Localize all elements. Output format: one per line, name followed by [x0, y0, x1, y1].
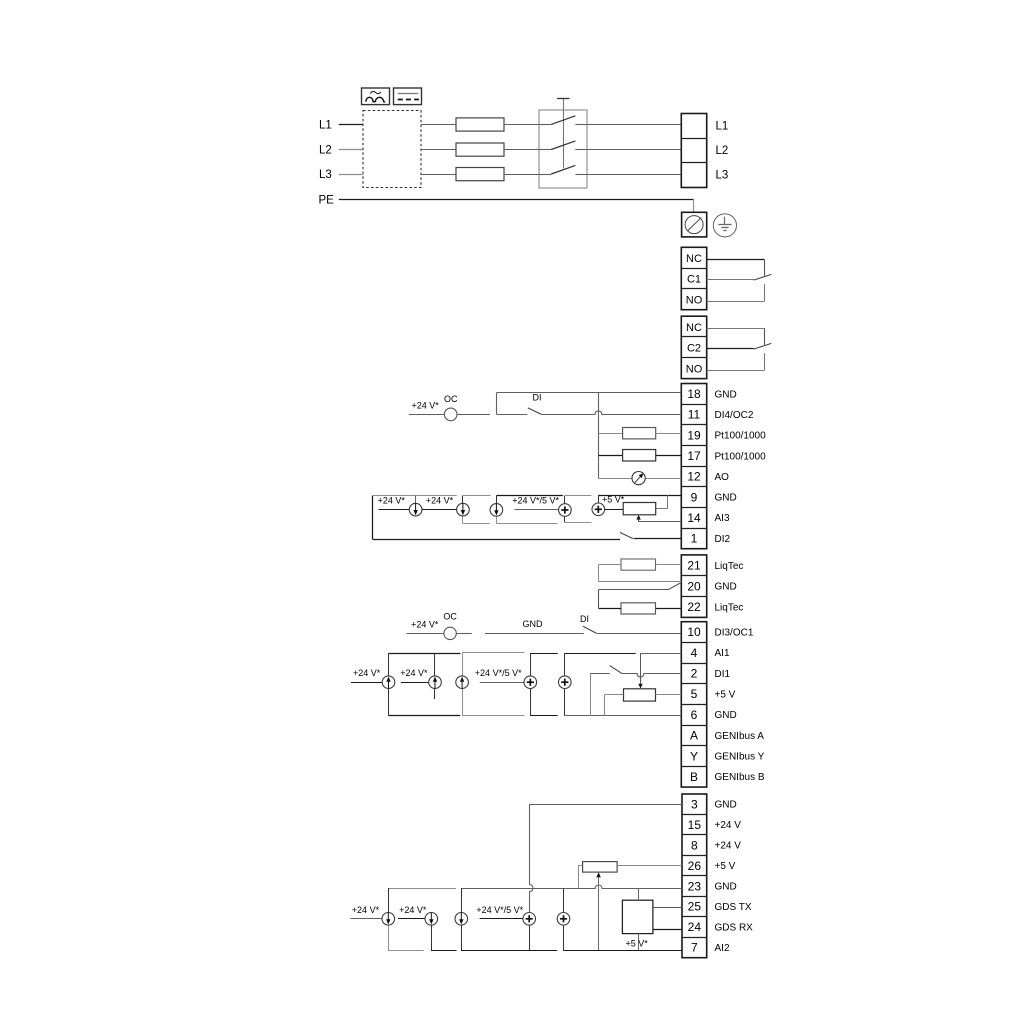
svg-text:Pt100/1000: Pt100/1000	[715, 451, 767, 462]
svg-text:+5 V: +5 V	[715, 690, 736, 701]
svg-text:C1: C1	[687, 274, 701, 286]
svg-text:A: A	[690, 729, 698, 743]
svg-text:5: 5	[691, 687, 698, 701]
svg-text:18: 18	[687, 387, 701, 401]
svg-text:+5 V*: +5 V*	[626, 939, 649, 949]
svg-text:LiqTec: LiqTec	[715, 561, 744, 572]
svg-text:GDS TX: GDS TX	[715, 902, 752, 913]
svg-text:NO: NO	[686, 363, 703, 375]
svg-text:AI1: AI1	[715, 648, 730, 659]
svg-text:1: 1	[691, 532, 698, 546]
svg-text:12: 12	[687, 470, 701, 484]
svg-text:GND: GND	[715, 882, 737, 893]
svg-text:L3: L3	[319, 169, 332, 181]
svg-text:PE: PE	[319, 195, 335, 207]
svg-text:L1: L1	[319, 120, 332, 132]
svg-text:GND: GND	[523, 619, 544, 629]
svg-text:9: 9	[691, 490, 698, 504]
svg-text:GENIbus Y: GENIbus Y	[715, 752, 765, 763]
svg-text:DI1: DI1	[715, 669, 731, 680]
svg-text:+24 V*: +24 V*	[399, 905, 427, 915]
svg-text:Y: Y	[690, 749, 698, 763]
svg-text:2: 2	[691, 667, 698, 681]
svg-text:GND: GND	[715, 800, 737, 811]
svg-text:OC: OC	[444, 394, 458, 404]
svg-text:L1: L1	[716, 120, 729, 132]
svg-text:NO: NO	[686, 295, 703, 307]
svg-text:Pt100/1000: Pt100/1000	[715, 431, 767, 442]
svg-text:25: 25	[688, 900, 702, 914]
svg-text:+24 V*: +24 V*	[352, 905, 380, 915]
svg-text:C2: C2	[687, 343, 701, 355]
svg-text:4: 4	[691, 646, 698, 660]
svg-text:+24 V*: +24 V*	[412, 400, 440, 410]
svg-text:AI3: AI3	[715, 513, 730, 524]
svg-text:+24 V*: +24 V*	[426, 496, 454, 506]
svg-text:+24 V*: +24 V*	[400, 668, 428, 678]
svg-text:26: 26	[688, 859, 702, 873]
svg-text:+24 V: +24 V	[715, 841, 742, 852]
svg-text:AO: AO	[715, 472, 730, 483]
svg-text:19: 19	[687, 428, 701, 442]
svg-text:DI2: DI2	[715, 534, 731, 545]
svg-text:LiqTec: LiqTec	[715, 602, 744, 613]
svg-text:+24 V*/5 V*: +24 V*/5 V*	[475, 668, 522, 678]
svg-text:23: 23	[688, 879, 702, 893]
svg-text:+24 V: +24 V	[715, 820, 742, 831]
svg-text:DI: DI	[580, 614, 589, 624]
svg-text:8: 8	[691, 838, 698, 852]
svg-text:15: 15	[688, 818, 702, 832]
svg-text:+24 V*: +24 V*	[378, 496, 406, 506]
svg-text:L2: L2	[716, 145, 729, 157]
svg-text:L3: L3	[716, 170, 729, 182]
svg-text:17: 17	[687, 449, 701, 463]
svg-text:DI4/OC2: DI4/OC2	[715, 410, 754, 421]
svg-text:GND: GND	[715, 389, 737, 400]
svg-text:11: 11	[688, 408, 701, 422]
svg-text:20: 20	[687, 579, 701, 593]
svg-text:NC: NC	[686, 253, 702, 265]
svg-text:6: 6	[691, 708, 698, 722]
svg-text:OC: OC	[443, 612, 457, 622]
svg-text:L2: L2	[319, 145, 332, 157]
svg-text:GENIbus A: GENIbus A	[715, 731, 765, 742]
svg-text:DI: DI	[533, 393, 542, 403]
svg-text:GND: GND	[715, 493, 737, 504]
svg-text:DI3/OC1: DI3/OC1	[715, 628, 754, 639]
svg-text:10: 10	[687, 625, 701, 639]
svg-text:24: 24	[688, 920, 702, 934]
svg-text:7: 7	[691, 941, 698, 955]
svg-text:22: 22	[687, 600, 701, 614]
svg-text:+24 V*/5 V*: +24 V*/5 V*	[512, 495, 559, 505]
svg-text:3: 3	[691, 797, 698, 811]
svg-text:+24 V*: +24 V*	[353, 668, 381, 678]
svg-text:+24 V*: +24 V*	[411, 619, 439, 629]
svg-text:GDS RX: GDS RX	[715, 922, 754, 933]
svg-text:GND: GND	[715, 710, 737, 721]
svg-text:21: 21	[687, 559, 701, 573]
svg-text:+24 V*/5 V*: +24 V*/5 V*	[476, 905, 523, 915]
svg-text:14: 14	[687, 511, 701, 525]
svg-text:AI2: AI2	[715, 943, 730, 954]
svg-text:GENIbus B: GENIbus B	[715, 772, 765, 783]
svg-text:NC: NC	[686, 322, 702, 334]
svg-text:GND: GND	[715, 582, 737, 593]
svg-text:B: B	[690, 770, 698, 784]
svg-text:+5 V: +5 V	[715, 861, 736, 872]
